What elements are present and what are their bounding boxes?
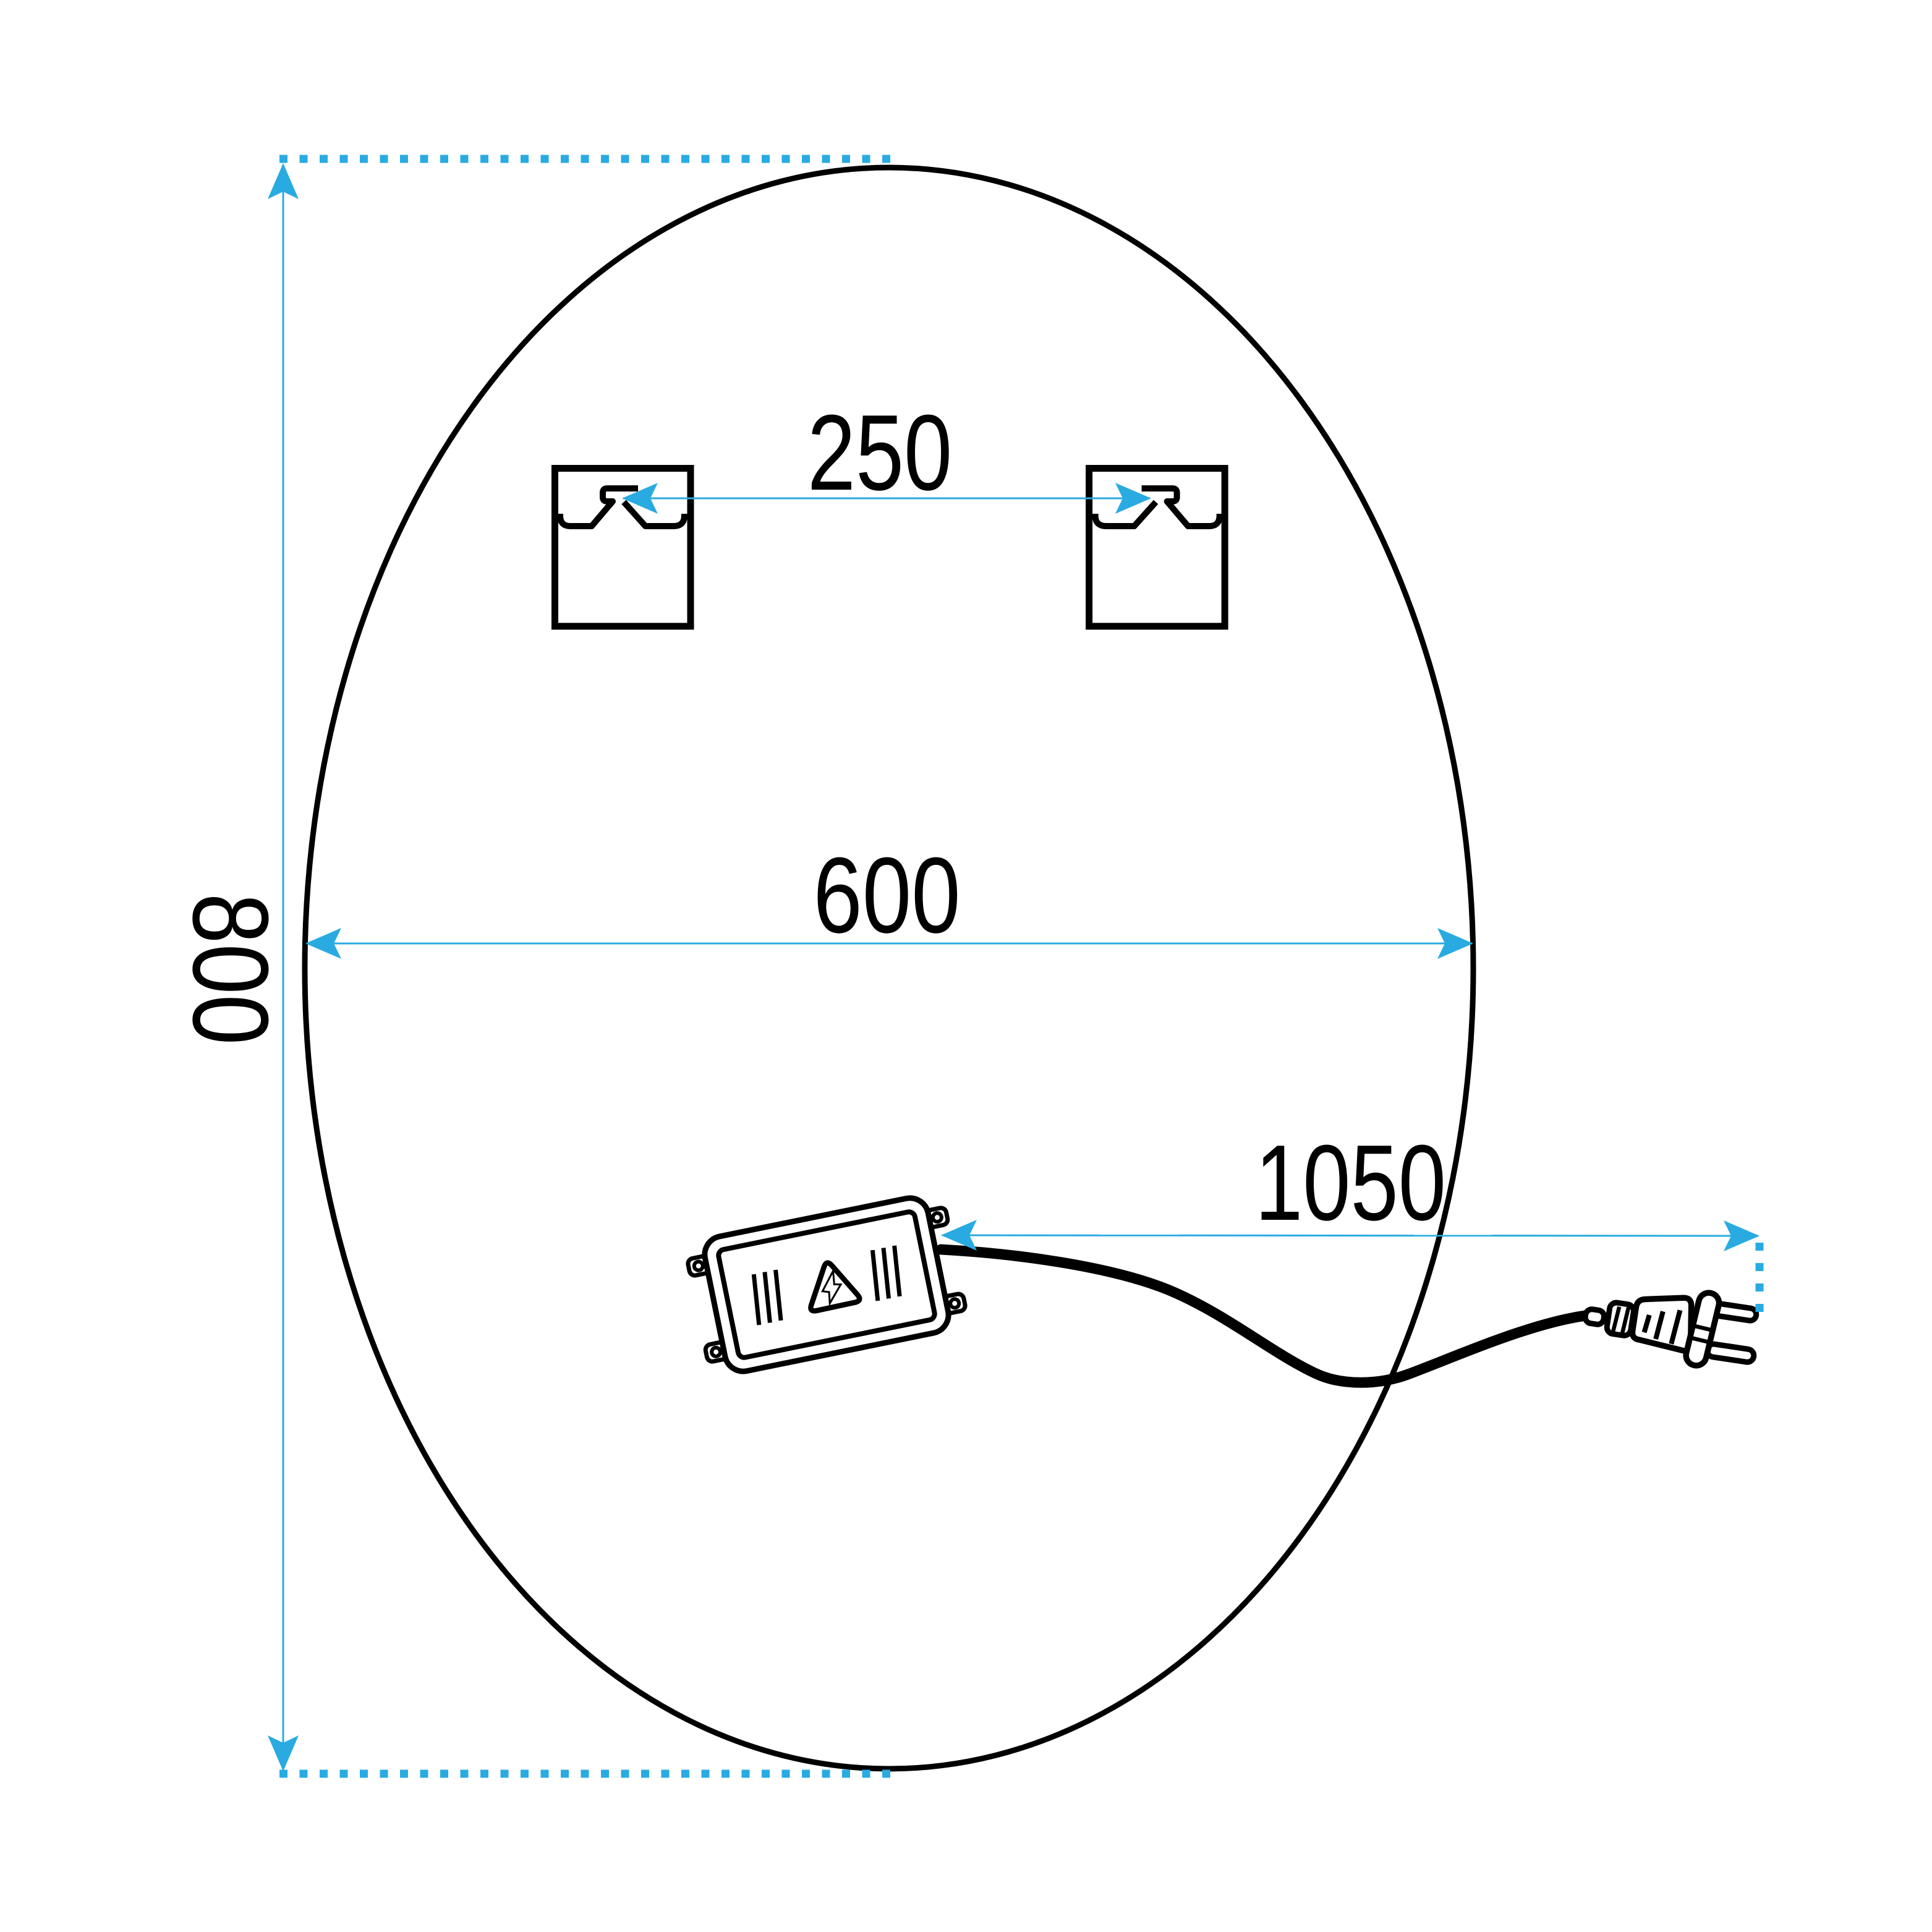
svg-text:600: 600 [813, 835, 960, 955]
svg-text:800: 800 [171, 893, 291, 1045]
svg-text:1050: 1050 [1255, 1122, 1446, 1243]
svg-text:250: 250 [807, 392, 952, 513]
